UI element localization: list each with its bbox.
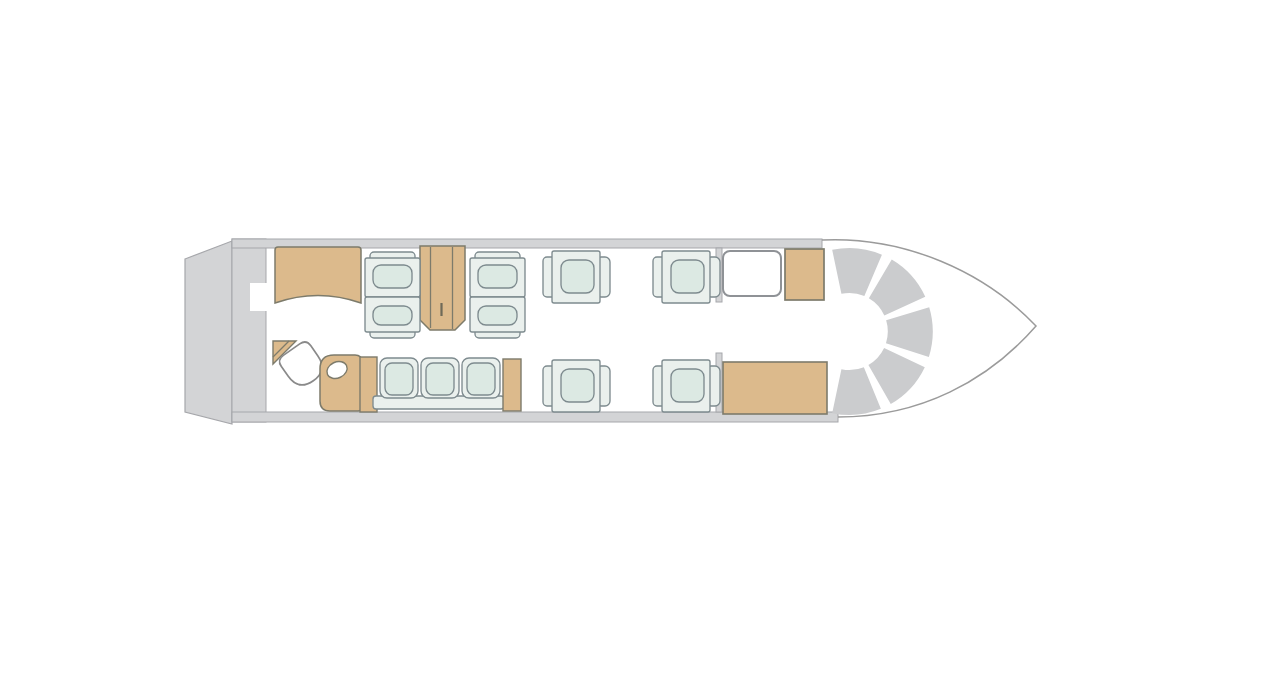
club-seat-fwd-inboard-part <box>478 306 517 325</box>
aircraft-floorplan-image <box>0 0 1280 673</box>
club-seat-aft-inboard-part <box>373 306 412 325</box>
wardrobe-cabinet <box>420 246 465 330</box>
three-seat-divan-cushion-1 <box>385 363 413 395</box>
single-seat-mid-port-fwd <box>653 251 720 303</box>
single-seat-mid-stbd-aft <box>543 360 610 412</box>
fwd-galley-cabinet-bottom <box>723 362 827 414</box>
club-seat-fwd-inboard <box>470 297 525 338</box>
single-seat-mid-port-aft <box>543 251 610 303</box>
rear-doorway-notch <box>250 283 267 311</box>
three-seat-divan-cushion-2 <box>426 363 454 395</box>
entry-door <box>723 251 781 296</box>
fwd-cabinet-top <box>785 249 824 300</box>
aircraft-floorplan-svg <box>0 0 1280 673</box>
three-seat-divan-cushion-3 <box>467 363 495 395</box>
single-seat-mid-port-aft-part <box>561 260 594 293</box>
single-seat-mid-port-fwd-part <box>671 260 704 293</box>
tail-cone <box>185 241 232 424</box>
three-seat-divan <box>373 358 504 409</box>
rear-bulkhead <box>232 239 266 422</box>
single-seat-mid-stbd-aft-part <box>561 369 594 402</box>
club-seat-aft-outboard <box>365 252 420 297</box>
single-seat-mid-stbd-fwd-part <box>671 369 704 402</box>
club-seat-aft-outboard-part <box>373 265 412 288</box>
divan-side-cabinet-fwd <box>503 359 521 411</box>
club-seat-aft-inboard <box>365 297 420 338</box>
aft-galley-cabinet <box>275 247 361 303</box>
cockpit-instrument-panel <box>837 271 911 393</box>
club-seat-fwd-outboard <box>470 252 525 297</box>
club-seat-fwd-outboard-part <box>478 265 517 288</box>
single-seat-mid-stbd-fwd <box>653 360 720 412</box>
